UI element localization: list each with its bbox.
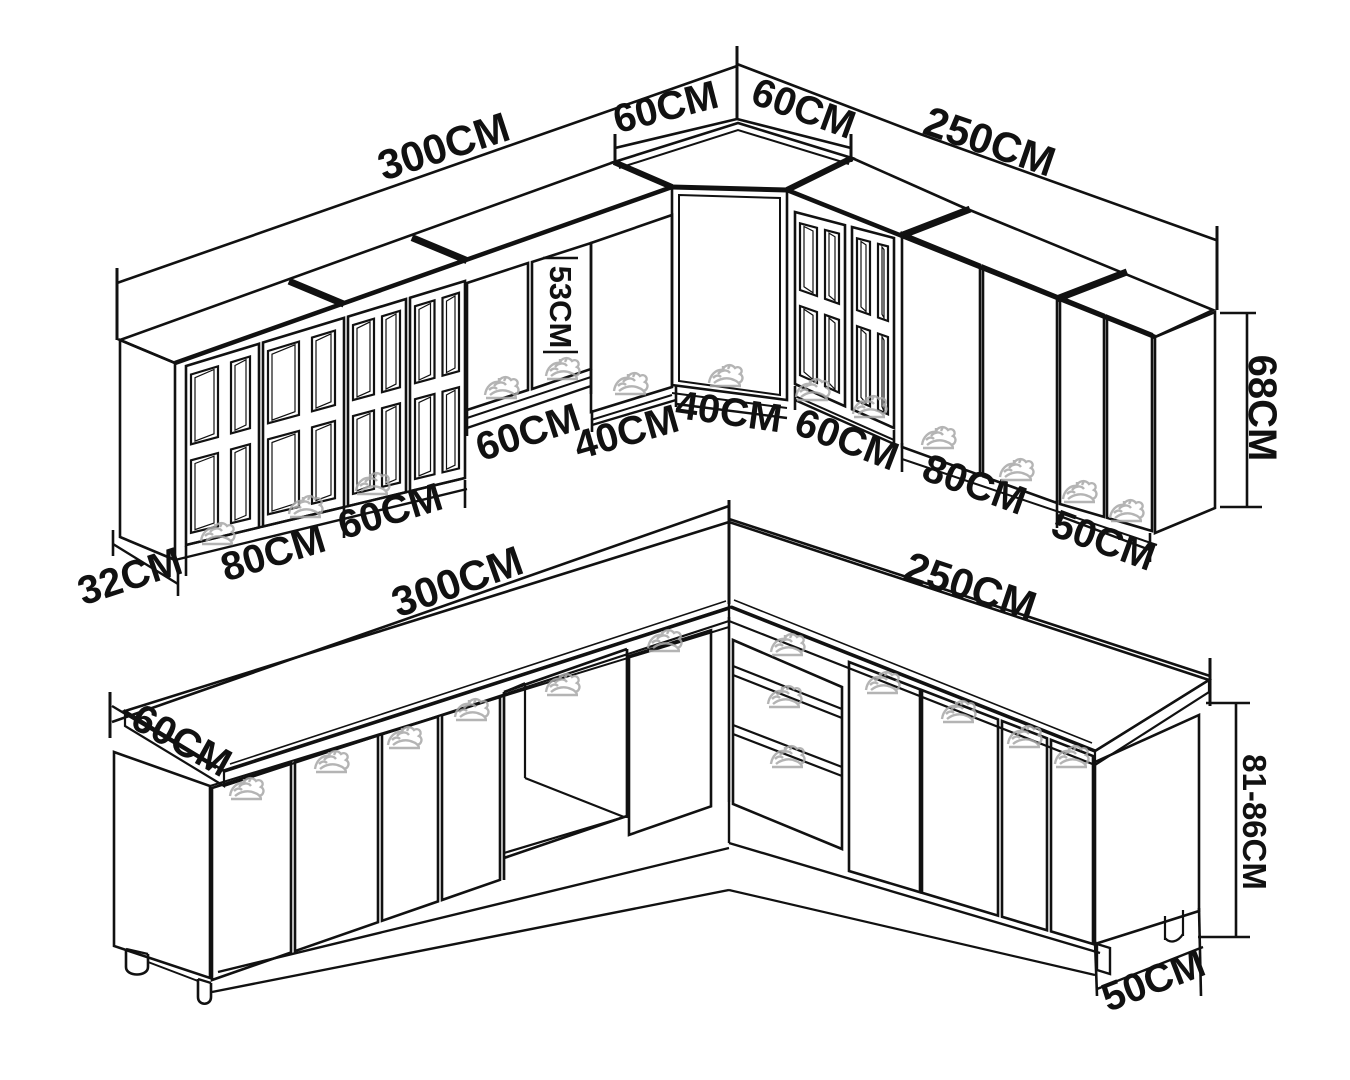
svg-text:53CM: 53CM (543, 266, 578, 349)
svg-text:68CM: 68CM (1240, 355, 1284, 462)
svg-text:81-86CM: 81-86CM (1236, 754, 1273, 890)
